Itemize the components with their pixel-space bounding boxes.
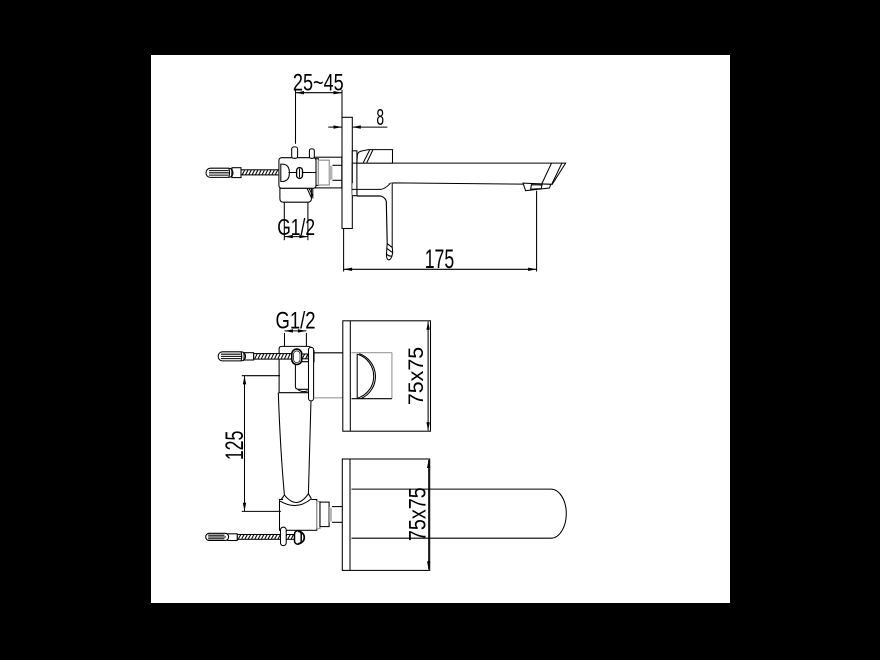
svg-text:175: 175 <box>425 244 455 274</box>
svg-text:75x75: 75x75 <box>405 347 428 405</box>
svg-text:G1/2: G1/2 <box>276 307 316 334</box>
svg-text:G1/2: G1/2 <box>277 214 315 240</box>
svg-text:75x75: 75x75 <box>406 487 432 541</box>
svg-text:8: 8 <box>376 104 384 130</box>
svg-text:25~45: 25~45 <box>293 70 344 96</box>
svg-text:125: 125 <box>221 431 249 461</box>
